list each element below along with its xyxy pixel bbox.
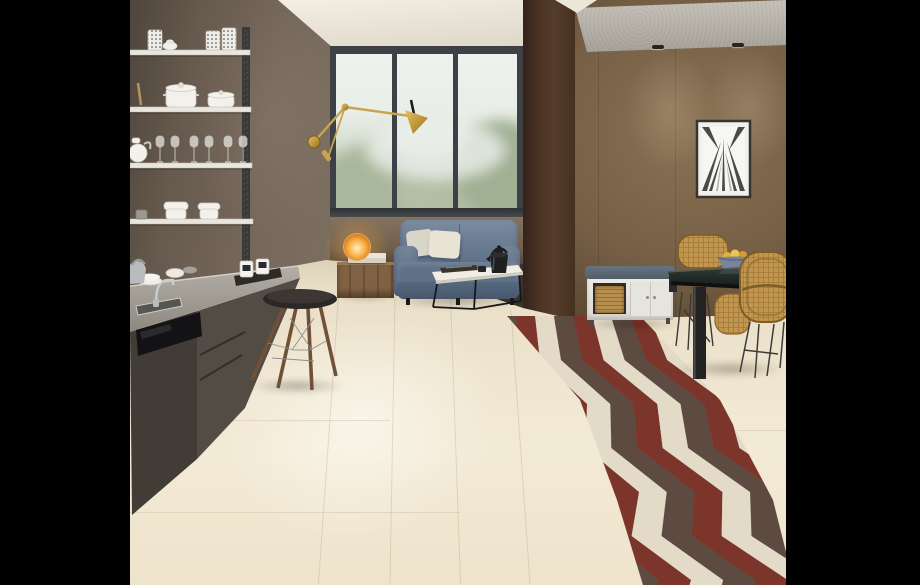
wine-glasses [156,136,247,162]
dining-set [666,230,786,385]
sideboard-leg [590,320,594,326]
sideboard-doors [630,282,671,316]
white-pots [138,83,234,108]
spotlight-icon [732,43,744,47]
door-handle [653,296,656,299]
window-mullion [453,54,458,210]
rattan-armchair [740,252,786,378]
interior-photo [130,0,786,585]
lamp-arm [328,107,345,158]
lamp-wall-mount [308,136,320,148]
white-teapot [130,138,150,162]
faucet-base [153,299,159,307]
lamp-joint [342,104,349,111]
bar-stool [242,288,352,400]
wicker-basket [595,286,624,313]
letterboxed-photo-canvas [0,0,920,585]
orb-lamp [343,233,371,261]
framed-tree-photo [696,118,752,200]
ceiling-beam [575,0,786,54]
lamp-arm [345,107,410,116]
black-cup [478,266,486,272]
spotlight-icon [652,45,664,49]
rattan-chair-back [678,235,728,268]
bowl-stacks [136,202,220,219]
lamp-shade [405,110,428,134]
lamp-finial [411,100,414,114]
dark-brown-pillar [523,0,575,321]
sideboard-cushion [585,266,675,279]
brass-wall-lamp [298,92,438,172]
crate-side-table [337,262,394,298]
door-handle [646,296,649,299]
lamp-arm [314,107,345,142]
coffee-table [426,242,528,316]
patterned-jars [148,28,236,50]
sofa-leg [406,298,410,305]
